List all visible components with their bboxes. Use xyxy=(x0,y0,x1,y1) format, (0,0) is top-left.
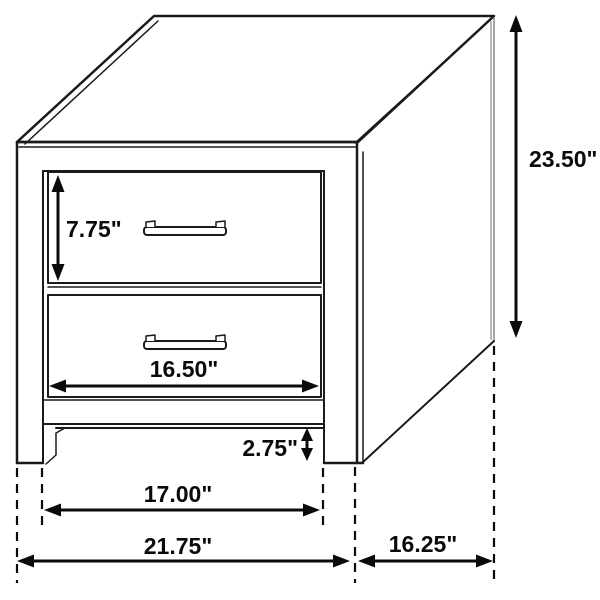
drawer-2-handle-bar xyxy=(144,341,226,349)
dimension-label: 16.50" xyxy=(150,356,218,382)
drawer-2-handle-right-post xyxy=(216,335,225,341)
drawer-1-handle-bar xyxy=(144,227,226,235)
arrow-right-icon xyxy=(303,504,320,517)
nightstand-dimension-diagram: 7.75" 16.50" 23.50" 2.75" 17.00" 21.75" xyxy=(0,0,600,600)
arrow-left-icon xyxy=(358,555,375,568)
dimension-label: 16.25" xyxy=(389,531,457,557)
dimension-base-clearance: 2.75" xyxy=(242,428,313,461)
dimension-overall-height: 23.50" xyxy=(510,15,598,338)
arrow-right-icon xyxy=(333,555,350,568)
dimension-label: 23.50" xyxy=(529,146,597,172)
dimension-label: 2.75" xyxy=(242,435,298,461)
arrow-down-icon xyxy=(510,321,523,338)
arrow-up-icon xyxy=(301,428,313,441)
arrow-up-icon xyxy=(510,15,523,32)
diagram-canvas: 7.75" 16.50" 23.50" 2.75" 17.00" 21.75" xyxy=(0,0,600,600)
dimension-label: 7.75" xyxy=(66,216,122,242)
dimension-side-depth: 16.25" xyxy=(358,531,493,568)
arrow-left-icon xyxy=(17,555,34,568)
arrow-right-icon xyxy=(476,555,493,568)
dimension-label: 17.00" xyxy=(144,481,212,507)
drawer-2-handle-left-post xyxy=(146,335,155,341)
dimension-inner-leg-width: 17.00" xyxy=(44,481,320,517)
left-leg-bracket xyxy=(46,428,65,464)
drawer-1-handle-right-post xyxy=(216,221,225,227)
dimension-label: 21.75" xyxy=(144,533,212,559)
arrow-left-icon xyxy=(44,504,61,517)
arrow-down-icon xyxy=(301,448,313,461)
drawer-1-handle-left-post xyxy=(146,221,155,227)
dimension-overall-width: 21.75" xyxy=(17,533,350,568)
